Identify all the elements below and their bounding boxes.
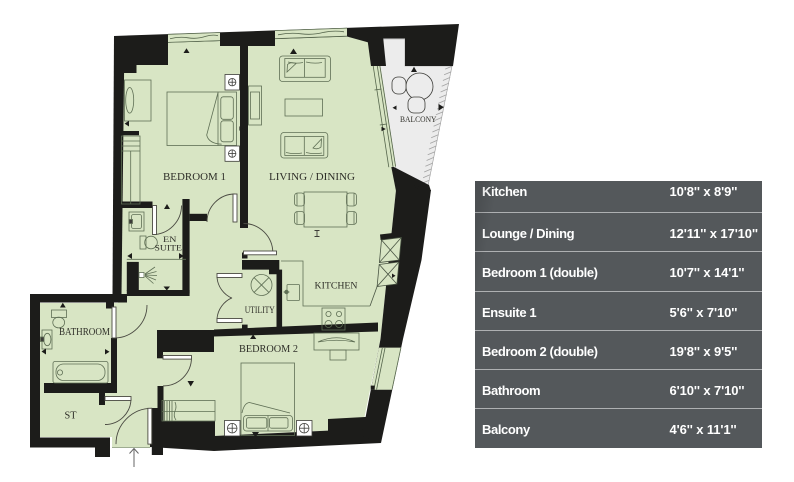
svg-text:ST: ST [65, 411, 77, 422]
svg-text:BEDROOM 2: BEDROOM 2 [239, 343, 298, 355]
svg-text:BATHROOM: BATHROOM [59, 327, 111, 338]
svg-text:LIVING / DINING: LIVING / DINING [269, 171, 355, 183]
svg-text:BEDROOM 1: BEDROOM 1 [163, 171, 226, 183]
svg-text:KITCHEN: KITCHEN [315, 281, 359, 291]
svg-text:BALCONY: BALCONY [400, 115, 437, 124]
svg-text:SUITE: SUITE [155, 243, 183, 253]
svg-text:UTILITY: UTILITY [245, 305, 275, 315]
